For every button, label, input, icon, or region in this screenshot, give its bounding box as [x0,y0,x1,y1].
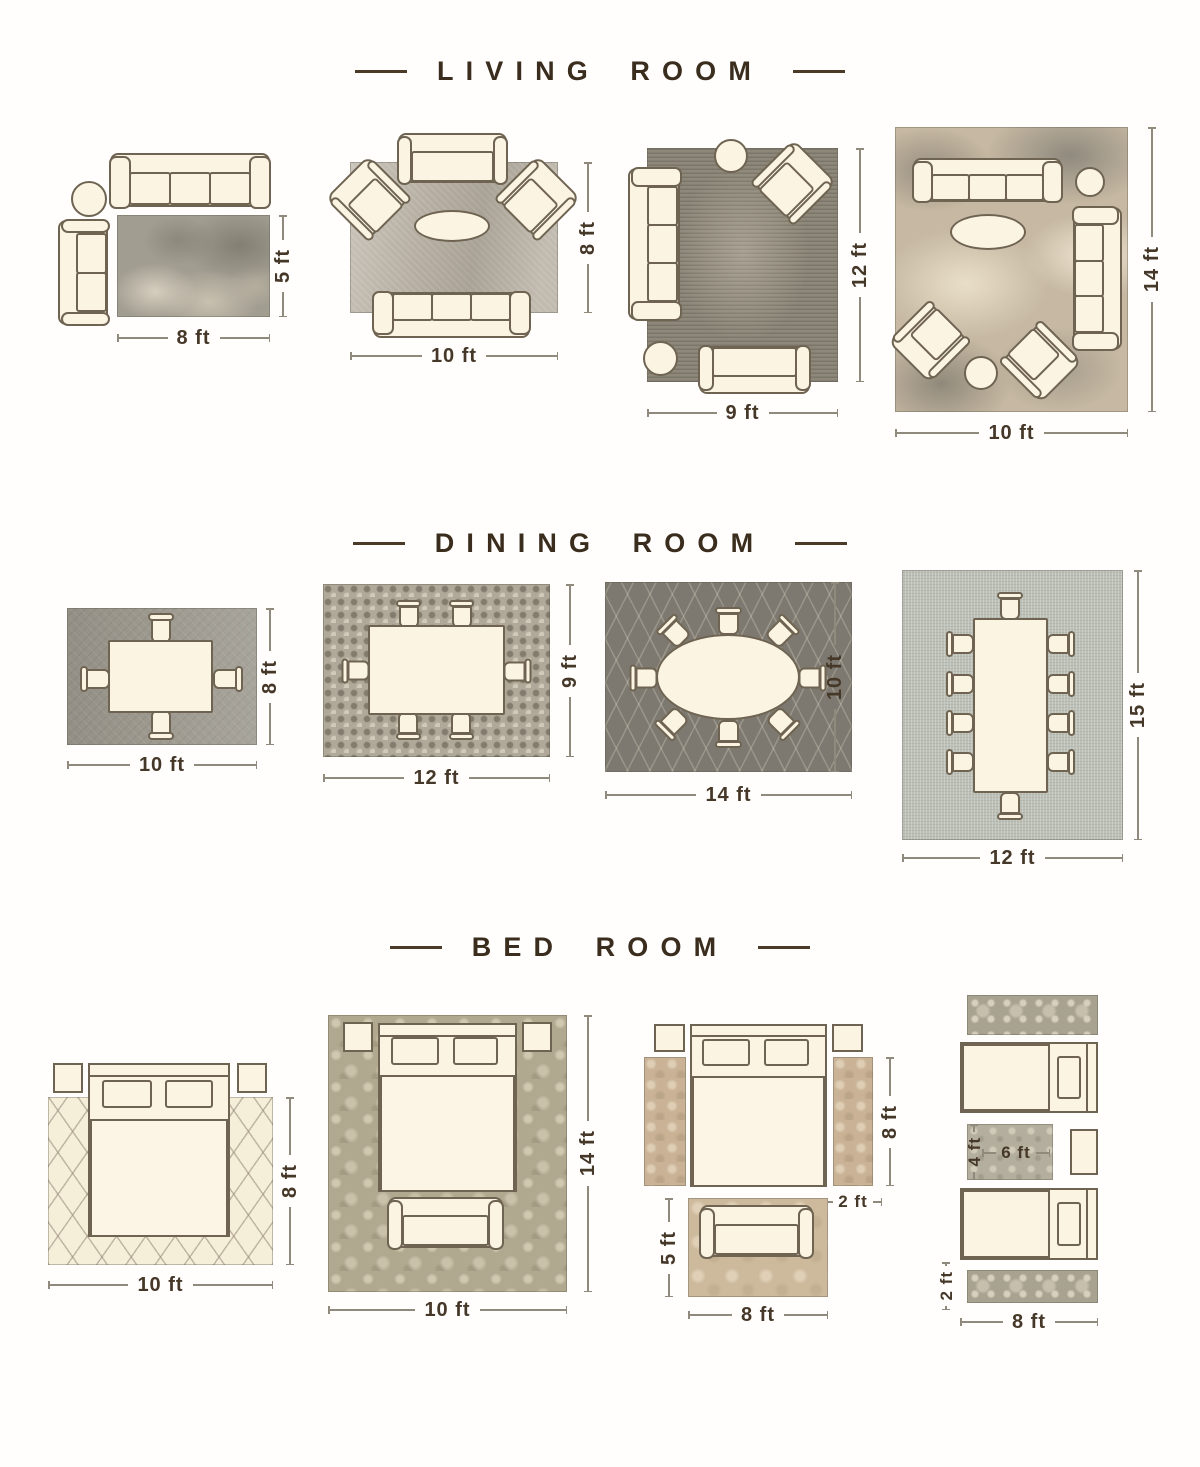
dimension-label: 5 ft [659,1231,679,1265]
dimension-label: 14 ft [1142,246,1162,292]
pillow [165,1080,213,1108]
dimension-height: 14 ft [1141,127,1163,412]
bench-arm [488,1200,504,1249]
dining-chair [946,709,974,737]
dimension-label: 15 ft [1128,682,1148,728]
section-title-living-room: LIVING ROOM [0,56,1200,87]
section-title-bed-room: BED ROOM [0,932,1200,963]
dimension-height: 14 ft [577,1015,599,1292]
seat-cushion [76,233,107,274]
dining-chair [1047,748,1075,776]
dimension-label: 5 ft [273,249,293,283]
dining-chair [147,710,175,740]
title-dash-right [758,946,810,949]
pillow [102,1080,152,1108]
dining-table [108,640,213,713]
seat-cushion [647,224,679,264]
sofa-cushions [76,233,107,313]
dimension-label: 8 ft [578,221,598,255]
dimension-label: 2 ft [938,1271,955,1301]
sofa-arm [631,167,681,187]
dimension-runner-width: 2 ft [824,1192,882,1212]
three-seat-sofa [628,168,680,320]
bench [388,1197,503,1248]
runner-rug [833,1057,873,1186]
loveseat [58,220,108,325]
twin-bed [960,1188,1098,1260]
runner-rug [644,1057,686,1186]
bench-arm [798,1208,814,1258]
runner-rug [967,1270,1098,1303]
dimension-label: 10 ft [137,1274,183,1297]
dimension-label: 10 ft [139,754,185,777]
dining-chair [714,607,743,635]
section-title-dining-room: DINING ROOM [0,528,1200,559]
seat-cushion [1074,295,1104,333]
dimension-width: 12 ft [902,848,1123,868]
sofa-arm [249,156,271,208]
seat-cushion [402,1215,489,1246]
nightstand [237,1063,267,1093]
dimension-label: 6 ft [1001,1143,1031,1163]
sofa-arm [698,345,714,392]
dimension-label: 9 ft [726,402,760,425]
title-dash-left [353,542,405,545]
dimension-label: 4 ft [966,1137,983,1167]
oval-coffee-table [414,210,490,242]
round-side-table [714,139,748,173]
sofa-arm [912,161,933,204]
dining-chair [80,665,110,693]
dimension-bench-rug-width: 8 ft [688,1305,828,1325]
dimension-height: 9 ft [559,584,581,757]
seat-cushion [392,293,433,321]
dining-chair [996,792,1024,820]
title-dash-right [793,70,845,73]
dimension-width: 14 ft [605,785,852,805]
bed [378,1023,517,1192]
dining-chair [504,658,532,685]
nightstand [522,1022,552,1052]
dining-chair [946,670,974,698]
dimension-runner-height: 8 ft [879,1057,901,1186]
sofa-arm [795,345,811,392]
seat-cushion [129,172,171,205]
twin-bed [960,1042,1098,1113]
dining-chair [799,664,827,693]
headboard [378,1023,517,1037]
three-seat-sofa [1073,207,1122,350]
dimension-height: 5 ft [272,215,294,317]
seat-cushion [209,172,251,205]
headboard [1086,1042,1088,1113]
round-ottoman [643,341,678,376]
seat-cushion [968,174,1007,201]
dimension-width: 10 ft [48,1275,273,1295]
sofa-cushions [392,293,511,321]
seat-cushion [1074,260,1104,298]
dining-chair [395,600,422,628]
three-seat-sofa [373,292,530,338]
section-title-text: LIVING ROOM [437,56,763,87]
sofa-arm [509,291,531,336]
dimension-label: 14 ft [705,784,751,807]
sofa-arm [372,291,394,336]
dining-chair [213,665,243,693]
dining-chair [147,613,175,643]
bench-cushion [714,1224,800,1256]
dimension-height: 12 ft [849,148,871,382]
dimension-width: 9 ft [647,403,838,423]
seat-cushion [714,1224,800,1256]
round-side-table [71,181,107,217]
section-title-text: DINING ROOM [435,528,765,559]
seat-cushion [1074,224,1104,262]
dining-chair [946,630,974,658]
dimension-label: 10 ft [431,345,477,368]
dimension-label: 8 ft [1012,1311,1046,1334]
sofa-arm [1072,206,1120,225]
dimension-label: 14 ft [578,1130,598,1176]
sofa-cushions [1074,224,1104,333]
bed [88,1063,230,1237]
sofa-cushions [647,186,679,302]
title-dash-right [795,542,847,545]
seat-cushion [931,174,970,201]
dining-chair [448,712,475,740]
sofa-arm [493,136,508,185]
dimension-height: 15 ft [1127,570,1149,840]
pillow [391,1037,440,1066]
dimension-label: 10 ft [988,422,1034,445]
dimension-width: 10 ft [895,423,1128,443]
rug-8x5 [117,215,270,317]
oval-coffee-table [950,214,1026,250]
bed-blanket [90,1119,228,1237]
round-ottoman [964,356,998,390]
bed-blanket [692,1076,825,1187]
dining-table [973,618,1048,793]
nightstand [832,1024,863,1052]
dimension-label: 12 ft [989,847,1035,870]
dimension-width: 8 ft [117,328,270,348]
headboard [690,1024,827,1037]
seat-cushion [647,186,679,226]
sofa-cushions [129,172,251,205]
seat-cushion [647,262,679,302]
headboard [1086,1188,1088,1260]
sofa-cushions [712,347,796,376]
dining-chair [1047,709,1075,737]
bench-arm [387,1200,403,1249]
sofa-cushions [931,174,1044,201]
dimension-bench-rug-height: 5 ft [658,1198,680,1297]
nightstand [343,1022,373,1052]
dimension-height: 8 ft [577,162,599,313]
sofa-arm [1072,332,1120,351]
rug-size-guide: LIVING ROOM 5 ft 8 ft [0,0,1200,1467]
bed [690,1024,827,1187]
bench-cushion [402,1215,489,1246]
three-seat-sofa [110,153,270,207]
seat-cushion [470,293,511,321]
sofa-arm [61,312,110,326]
dining-chair [946,748,974,776]
dining-chair [395,712,422,740]
seat-cushion [169,172,211,205]
pillow [1057,1202,1082,1245]
dimension-label: 8 ft [260,660,280,694]
runner-rug [967,995,1098,1035]
dimension-label: 8 ft [280,1164,300,1198]
title-dash-left [390,946,442,949]
oval-dining-table [656,634,800,720]
dimension-height: 8 ft [259,608,281,745]
dimension-width: 10 ft [350,346,558,366]
pillow [764,1039,809,1067]
dimension-label: 8 ft [177,327,211,350]
dining-table [368,625,505,715]
dimension-label: 12 ft [413,767,459,790]
nightstand [654,1024,685,1052]
loveseat [699,346,810,394]
sofa-arm [631,301,681,321]
pillow [1057,1056,1082,1099]
sofa-arm [109,156,131,208]
bed-blanket [380,1075,515,1192]
seat-cushion [76,272,107,313]
dimension-label: 10 ft [825,654,845,700]
title-dash-left [355,70,407,73]
dimension-label: 2 ft [838,1192,868,1212]
dimension-label: 8 ft [880,1105,900,1139]
dimension-width: 10 ft [67,755,257,775]
round-side-table [1075,167,1105,197]
bench-arm [699,1208,715,1258]
dimension-width: 10 ft [328,1300,567,1320]
bench [700,1205,813,1257]
sofa-arm [397,136,412,185]
sofa-arm [61,219,110,233]
dining-chair [448,600,475,628]
seat-cushion [712,347,796,376]
nightstand [1070,1129,1098,1175]
dining-chair [996,592,1024,620]
sofa-arm [1042,161,1063,204]
dining-chair [630,664,658,693]
loveseat [398,133,507,183]
seat-cushion [411,151,494,182]
dimension-width: 8 ft [960,1312,1098,1332]
bed-blanket [962,1044,1050,1111]
dimension-runner-height: 2 ft [935,1262,957,1310]
dimension-label: 10 ft [424,1299,470,1322]
three-seat-sofa [913,158,1062,202]
nightstand [53,1063,83,1093]
seat-cushion [1005,174,1044,201]
dimension-height: 8 ft [279,1097,301,1265]
section-title-text: BED ROOM [472,932,729,963]
pillow [453,1037,497,1066]
pillow [702,1039,750,1067]
dining-chair [714,720,743,748]
dining-chair [1047,630,1075,658]
sofa-cushions [411,151,494,182]
headboard [88,1063,230,1077]
dining-chair [342,658,370,685]
dimension-label: 9 ft [560,654,580,688]
dimension-width: 12 ft [323,768,550,788]
seat-cushion [431,293,472,321]
dimension-height: 10 ft [824,582,846,772]
dimension-label: 8 ft [741,1304,775,1327]
dimension-mid-rug-width: 6 ft [982,1143,1050,1163]
dining-chair [1047,670,1075,698]
bed-blanket [962,1190,1050,1258]
dimension-label: 12 ft [850,242,870,288]
